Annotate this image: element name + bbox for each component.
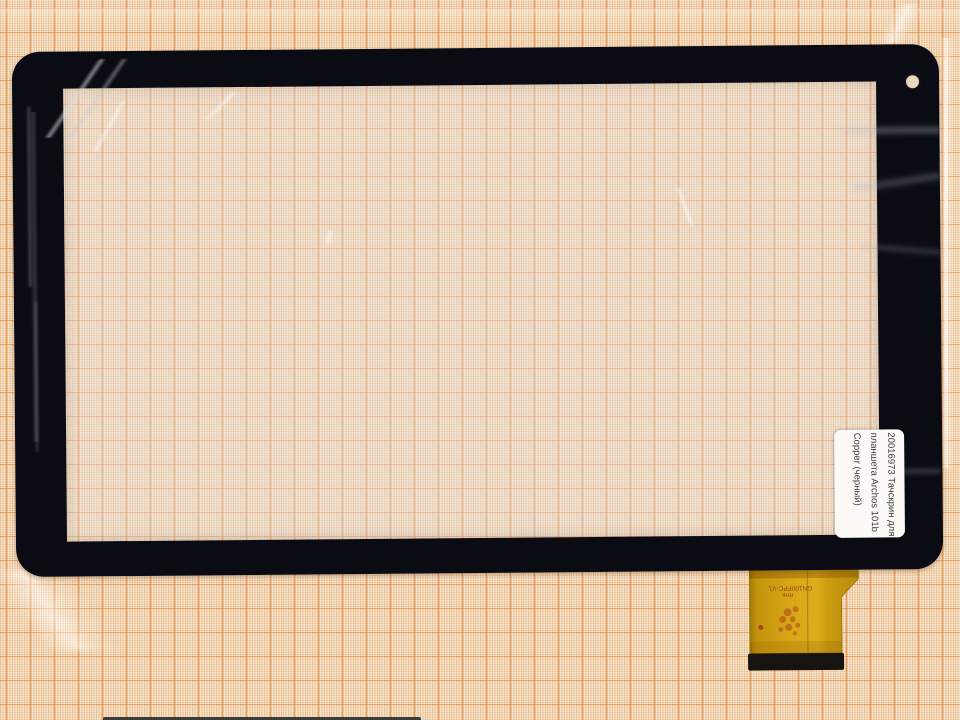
svg-text:RHK: RHK: [781, 591, 793, 597]
svg-text:GN100FPC-V1: GN100FPC-V1: [768, 584, 812, 591]
